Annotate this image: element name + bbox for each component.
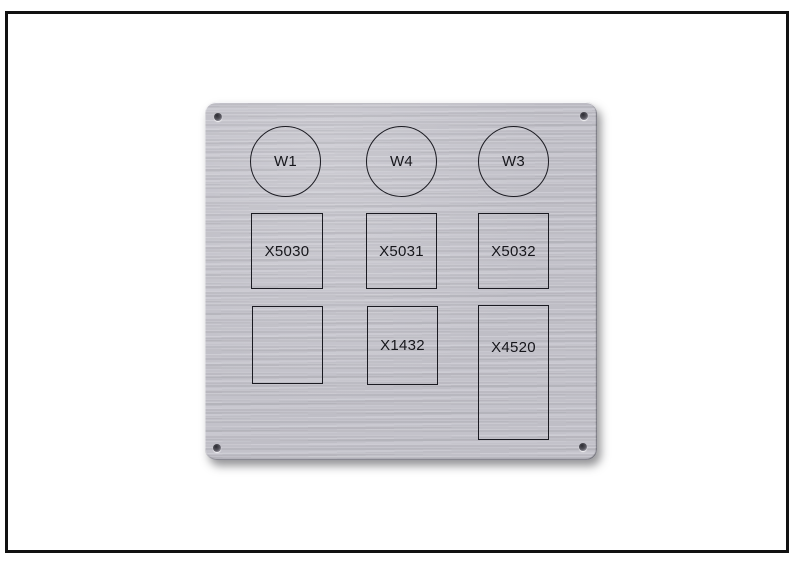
circle-marking-w1: W1 — [250, 126, 321, 197]
rect-marking-x1432: X1432 — [367, 306, 438, 385]
rect-label-x4520: X4520 — [491, 339, 536, 356]
rect-marking-x5030: X5030 — [251, 213, 323, 289]
mounting-hole-bottom-right — [579, 443, 587, 451]
photo-background: W1 W4 W3 X5030 X5031 X5032 X1432 X4520 — [0, 0, 800, 565]
circle-marking-w4: W4 — [366, 126, 437, 197]
metal-panel-plate: W1 W4 W3 X5030 X5031 X5032 X1432 X4520 — [205, 102, 597, 460]
circle-label-w4: W4 — [390, 153, 413, 170]
rect-marking-x5032: X5032 — [478, 213, 549, 289]
circle-marking-w3: W3 — [478, 126, 549, 197]
circle-label-w3: W3 — [502, 153, 525, 170]
circle-label-w1: W1 — [274, 153, 297, 170]
rect-label-x5032: X5032 — [491, 243, 536, 260]
rect-marking-empty — [252, 306, 323, 384]
rect-label-x1432: X1432 — [380, 337, 425, 354]
rect-marking-x4520: X4520 — [478, 305, 549, 440]
mounting-hole-bottom-left — [213, 444, 221, 452]
rect-marking-x5031: X5031 — [366, 213, 437, 289]
mounting-hole-top-right — [580, 112, 588, 120]
mounting-hole-top-left — [214, 113, 222, 121]
rect-label-x5030: X5030 — [265, 243, 310, 260]
rect-label-x5031: X5031 — [379, 243, 424, 260]
